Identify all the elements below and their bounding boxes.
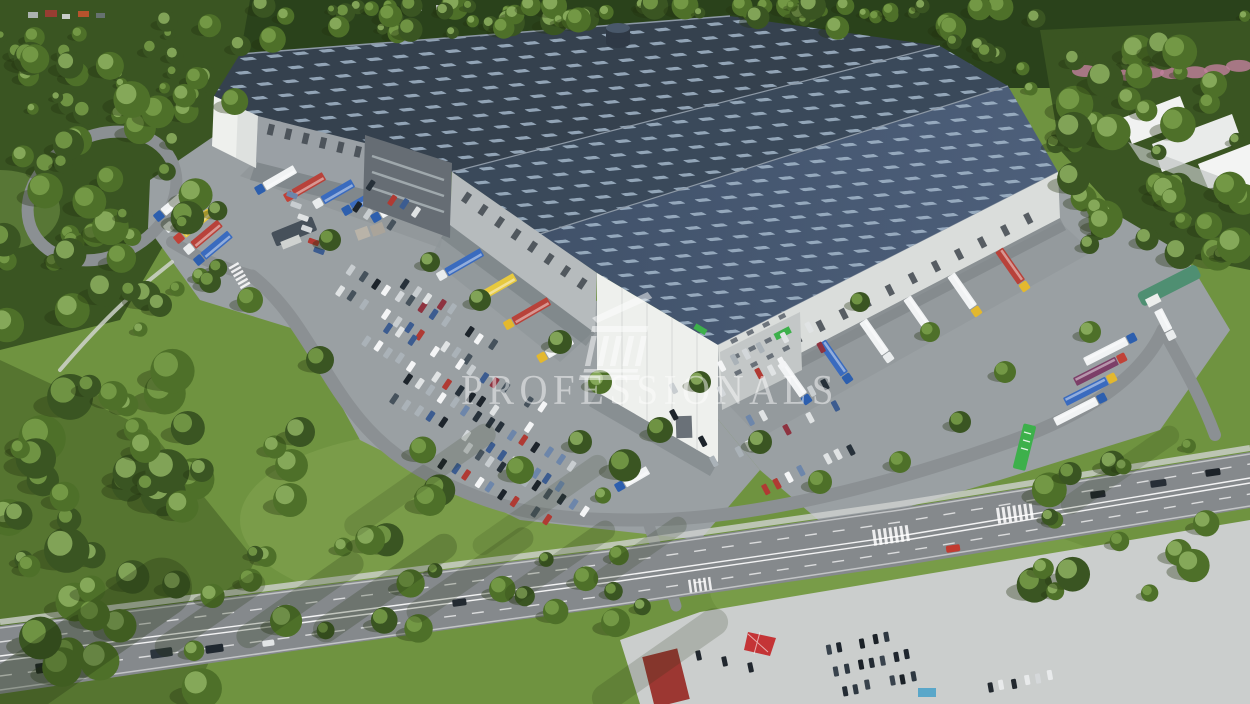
water-tank <box>606 23 630 48</box>
entrance-door <box>676 416 693 439</box>
wall-shade <box>236 107 258 168</box>
pool-display <box>918 688 936 697</box>
aerial-render: PROFESSIONALS <box>0 0 1250 704</box>
